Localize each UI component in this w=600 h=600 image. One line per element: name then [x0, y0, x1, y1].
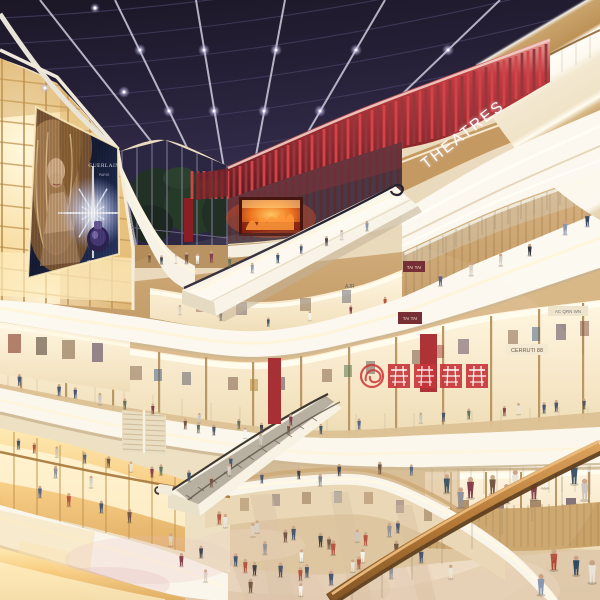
- svg-text:AC QRN WN: AC QRN WN: [555, 309, 581, 314]
